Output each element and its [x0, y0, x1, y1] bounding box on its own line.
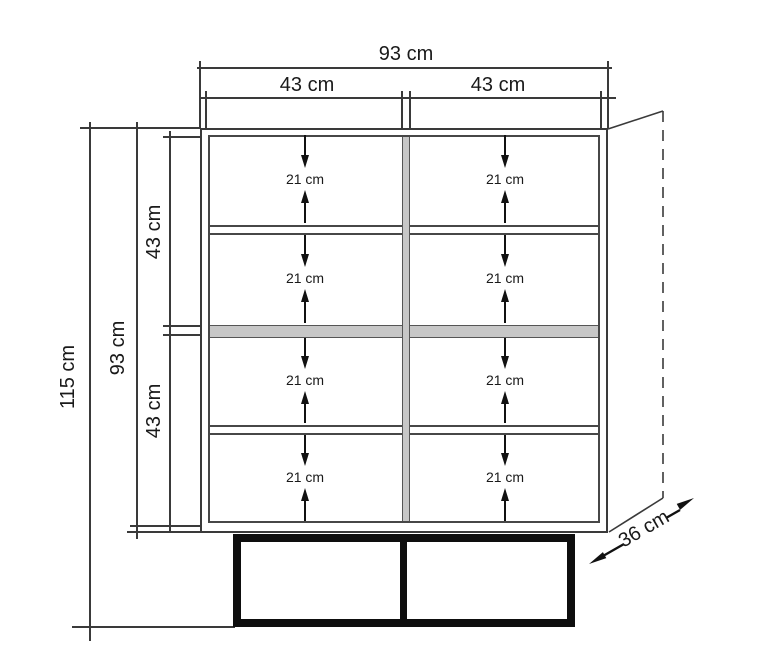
cell-height-label: 21 cm	[486, 369, 524, 391]
cell-row3-left: 21 cm	[208, 337, 402, 423]
extension-line	[199, 61, 201, 128]
extension-line	[163, 136, 200, 138]
dim-line-total-width	[197, 67, 612, 69]
cell-row3-right: 21 cm	[410, 337, 600, 423]
extension-line	[401, 91, 403, 133]
dim-line-lower-section	[169, 329, 171, 533]
extension-line	[205, 91, 207, 128]
dim-line-total-height	[89, 122, 91, 641]
cell-row4-left: 21 cm	[208, 433, 402, 521]
arrow-down-icon	[208, 433, 402, 466]
extension-line	[130, 525, 200, 527]
arrow-down-icon	[410, 433, 600, 466]
cell-row2-left: 21 cm	[208, 233, 402, 323]
lower-section-height-label: 43 cm	[144, 381, 164, 441]
arrow-up-icon	[208, 190, 402, 223]
extension-line	[600, 91, 602, 128]
cell-height-label: 21 cm	[286, 369, 324, 391]
cell-height-label: 21 cm	[286, 267, 324, 289]
extension-line	[127, 531, 200, 533]
arrow-up-icon	[208, 391, 402, 423]
total-width-label: 93 cm	[376, 44, 436, 64]
upper-section-height-label: 43 cm	[144, 202, 164, 262]
arrow-up-icon	[410, 488, 600, 521]
depth-label: 36 cm	[613, 505, 675, 553]
cell-height-label: 21 cm	[486, 267, 524, 289]
base-frame	[233, 534, 575, 627]
cell-height-label: 21 cm	[486, 466, 524, 488]
cell-row4-right: 21 cm	[410, 433, 600, 521]
left-compartment-width-label: 43 cm	[277, 75, 337, 95]
body-height-label: 93 cm	[108, 318, 128, 378]
extension-line	[72, 626, 235, 628]
arrow-up-icon	[208, 488, 402, 521]
extension-line	[409, 91, 411, 133]
arrow-down-icon	[208, 135, 402, 168]
total-height-label: 115 cm	[58, 342, 78, 412]
arrow-up-icon	[410, 190, 600, 223]
center-divider	[402, 137, 410, 521]
arrow-up-icon	[410, 391, 600, 423]
extension-line	[80, 127, 200, 129]
arrow-up-icon	[208, 289, 402, 323]
cell-row1-left: 21 cm	[208, 135, 402, 223]
extension-line	[163, 334, 200, 336]
cell-height-label: 21 cm	[486, 168, 524, 190]
arrow-down-icon	[208, 233, 402, 267]
cell-row1-right: 21 cm	[410, 135, 600, 223]
dim-line-body-height	[136, 122, 138, 539]
arrow-down-icon	[410, 337, 600, 369]
cabinet-dimension-diagram: 93 cm 43 cm 43 cm 115 cm 93 cm 43 cm 43 …	[0, 0, 775, 666]
perspective-top-edge-line	[608, 111, 663, 129]
extension-line	[163, 325, 200, 327]
arrow-down-icon	[410, 233, 600, 267]
base-divider	[400, 542, 407, 619]
arrow-down-icon	[410, 135, 600, 168]
cell-height-label: 21 cm	[286, 466, 324, 488]
extension-line	[607, 61, 609, 128]
right-compartment-width-label: 43 cm	[468, 75, 528, 95]
arrow-down-icon	[208, 337, 402, 369]
arrow-up-icon	[410, 289, 600, 323]
cell-row2-right: 21 cm	[410, 233, 600, 323]
dim-line-upper-section	[169, 131, 171, 333]
cell-height-label: 21 cm	[286, 168, 324, 190]
